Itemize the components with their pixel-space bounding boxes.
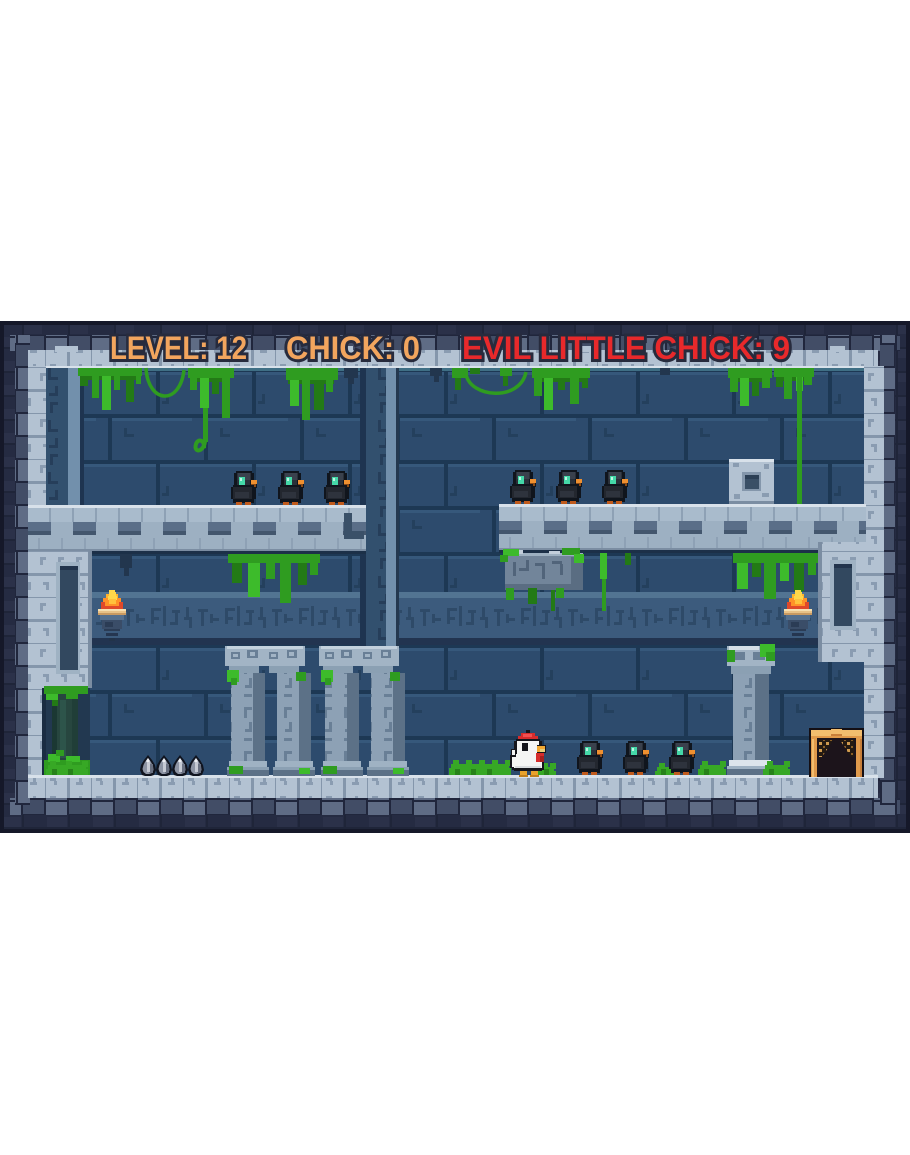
svg-text:EVIL LITTLE CHICK: 9: EVIL LITTLE CHICK: 9 [462, 330, 790, 366]
svg-text:LEVEL: 12: LEVEL: 12 [110, 330, 247, 366]
svg-text:CHICK: 0: CHICK: 0 [286, 330, 420, 366]
